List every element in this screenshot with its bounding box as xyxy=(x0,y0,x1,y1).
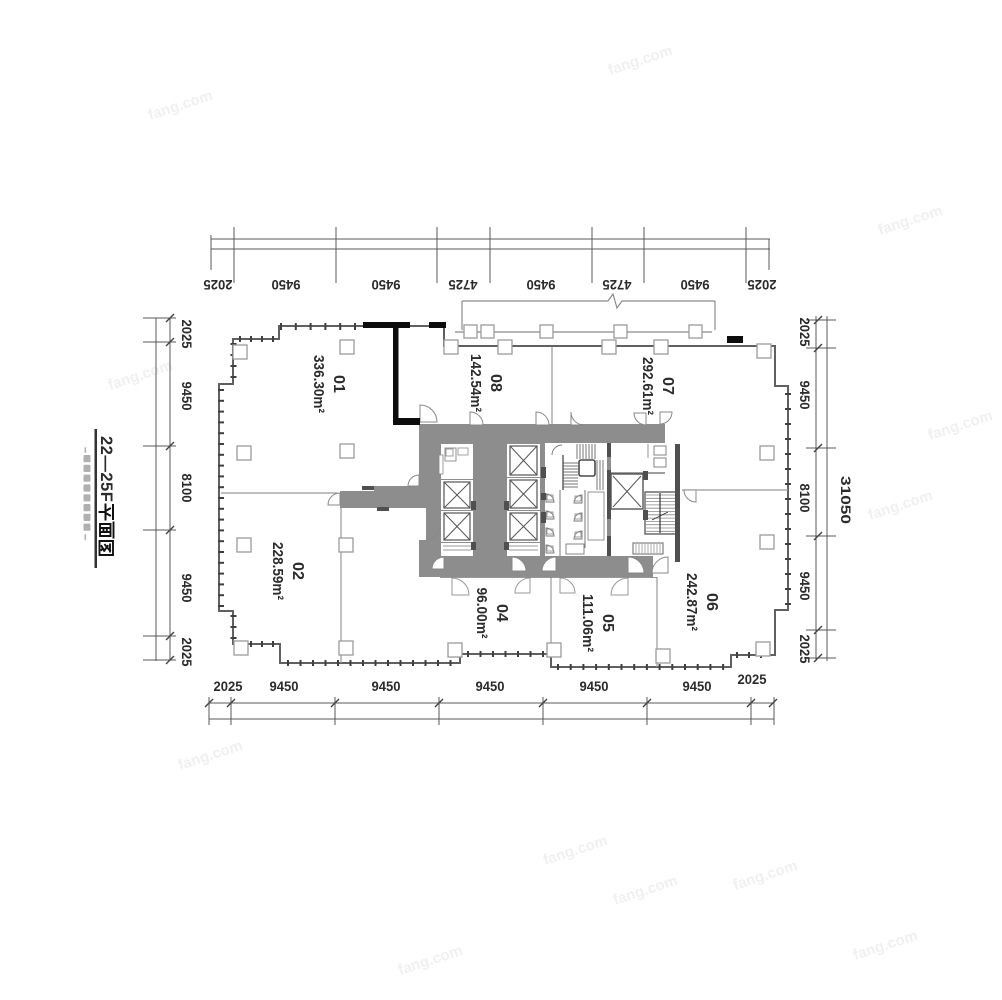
svg-text:9450: 9450 xyxy=(527,277,556,292)
svg-text:04: 04 xyxy=(493,604,510,622)
svg-text:228.59m²: 228.59m² xyxy=(269,542,286,600)
svg-text:2025: 2025 xyxy=(738,672,767,687)
svg-text:31050: 31050 xyxy=(838,476,853,524)
svg-text:9450: 9450 xyxy=(681,277,710,292)
svg-text:9450: 9450 xyxy=(683,679,712,694)
svg-text:9450: 9450 xyxy=(476,679,505,694)
svg-text:9450: 9450 xyxy=(270,679,299,694)
svg-text:9450: 9450 xyxy=(797,572,812,601)
svg-text:2025: 2025 xyxy=(203,277,232,292)
svg-text:05: 05 xyxy=(599,614,616,632)
svg-text:242.87m²: 242.87m² xyxy=(683,573,700,631)
svg-text:142.54m²: 142.54m² xyxy=(467,354,484,412)
svg-text:9450: 9450 xyxy=(179,382,194,411)
svg-text:2025: 2025 xyxy=(747,277,776,292)
svg-text:9450: 9450 xyxy=(797,381,812,410)
svg-text:07: 07 xyxy=(659,377,676,395)
svg-text:08: 08 xyxy=(487,374,504,392)
svg-text:8100: 8100 xyxy=(179,474,194,503)
svg-text:4725: 4725 xyxy=(448,277,477,292)
svg-text:01: 01 xyxy=(330,375,347,393)
svg-text:9450: 9450 xyxy=(372,679,401,694)
svg-text:292.61m²: 292.61m² xyxy=(639,357,656,415)
svg-text:2025: 2025 xyxy=(179,638,194,667)
svg-text:2025: 2025 xyxy=(797,318,812,347)
svg-text:9450: 9450 xyxy=(372,277,401,292)
svg-text:9450: 9450 xyxy=(580,679,609,694)
svg-text:22—25F: 22—25F xyxy=(97,436,115,502)
svg-text:06: 06 xyxy=(703,593,720,611)
svg-text:2025: 2025 xyxy=(179,320,194,349)
svg-text:336.30m²: 336.30m² xyxy=(310,355,327,413)
svg-text:2025: 2025 xyxy=(797,635,812,664)
svg-text:02: 02 xyxy=(289,562,306,580)
svg-text:4725: 4725 xyxy=(602,277,631,292)
svg-text:96.00m²: 96.00m² xyxy=(473,588,490,639)
svg-text:9450: 9450 xyxy=(272,277,301,292)
svg-text:8100: 8100 xyxy=(797,484,812,513)
svg-text:9450: 9450 xyxy=(179,574,194,603)
svg-text:111.06m²: 111.06m² xyxy=(579,594,596,652)
svg-text:2025: 2025 xyxy=(214,679,243,694)
